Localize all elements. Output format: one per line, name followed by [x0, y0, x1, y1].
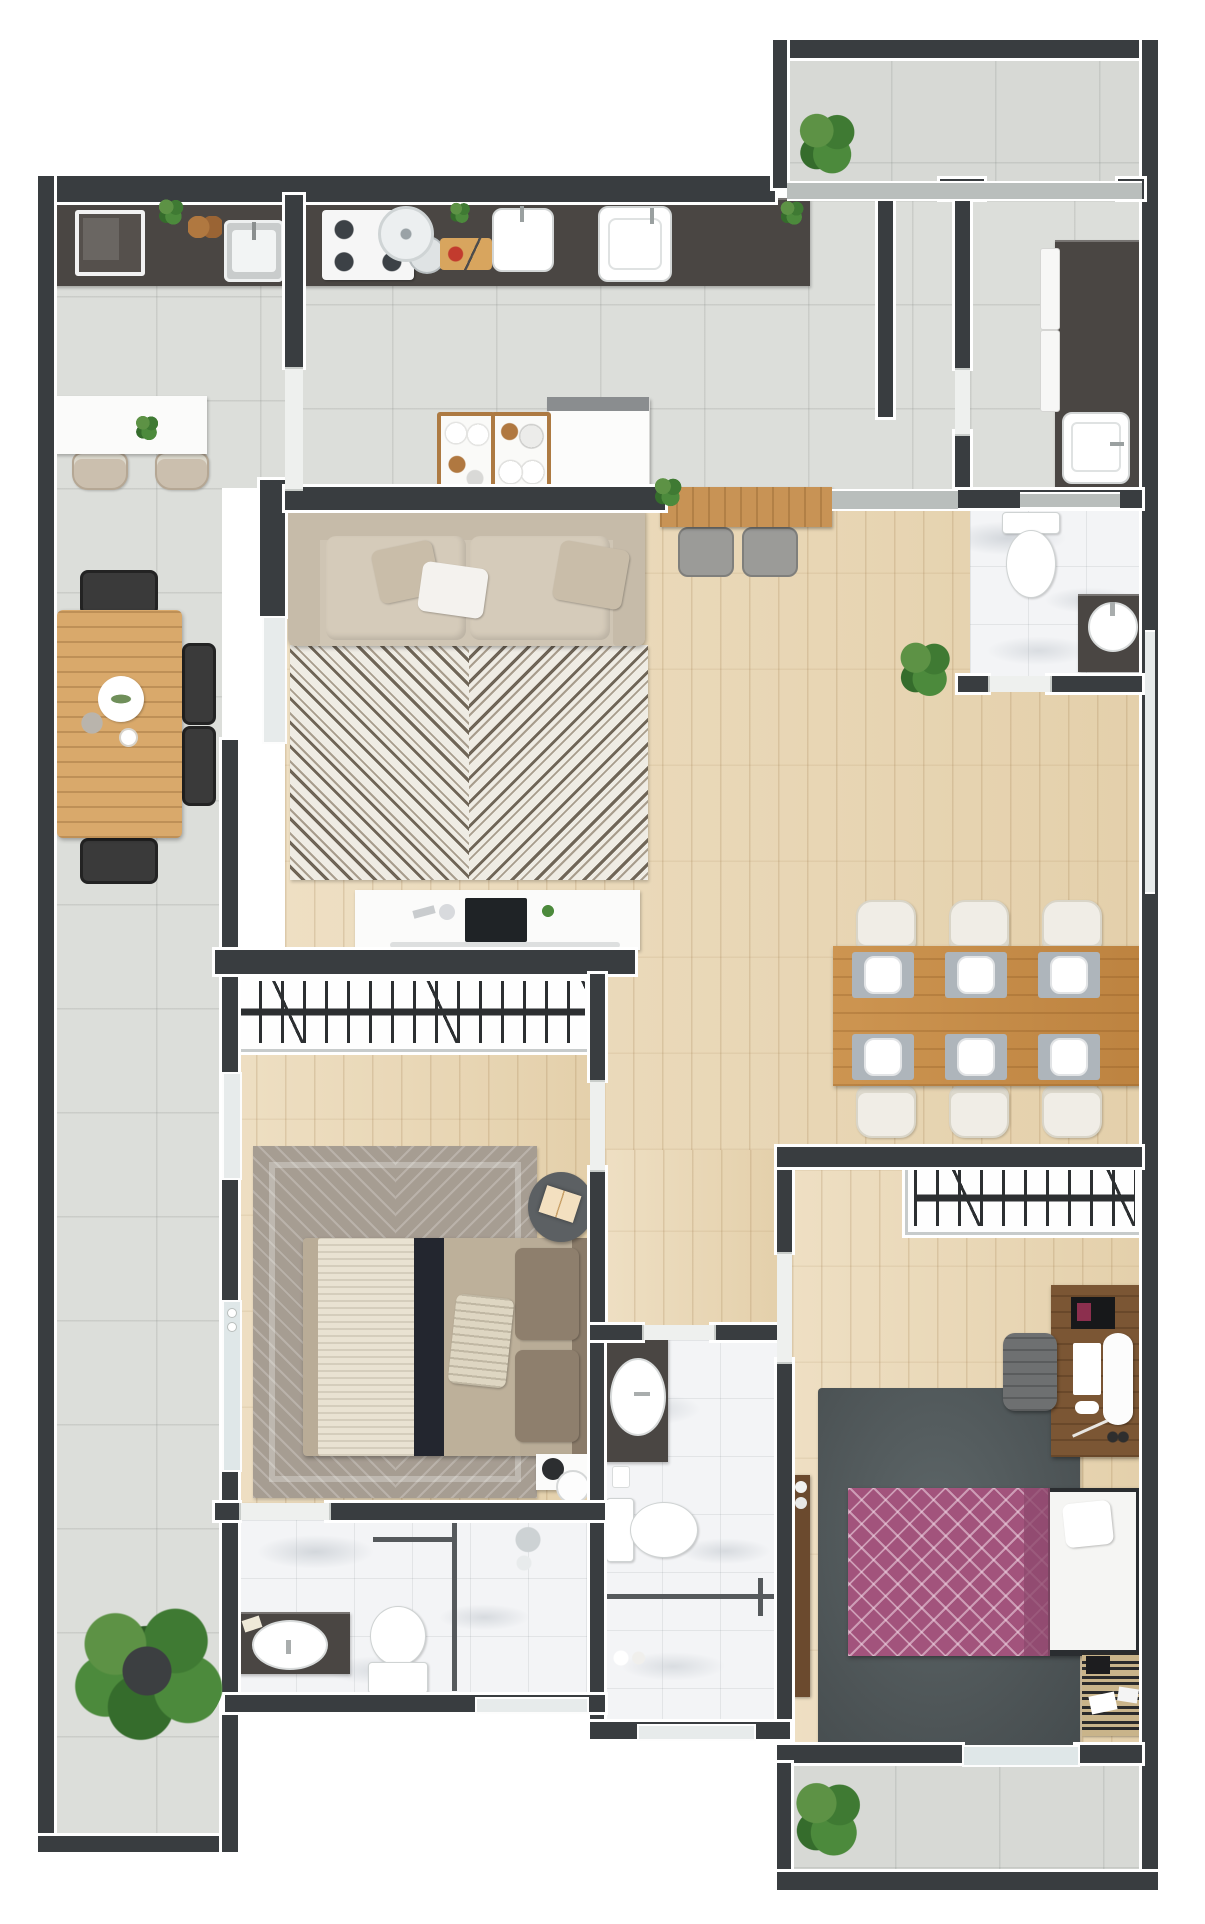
wall-bathroom3-bottom-b	[1048, 676, 1142, 692]
bathroom3-toilet-bowl	[1006, 530, 1056, 598]
plant-terrace-table	[134, 412, 160, 442]
bathroom2-cup	[612, 1466, 630, 1488]
terrace-built-in-appliance	[75, 210, 145, 276]
tv	[465, 898, 527, 942]
plate	[1050, 956, 1088, 994]
mat-card-1	[1088, 1691, 1117, 1714]
desk	[1051, 1285, 1139, 1457]
bathroom1-shower-partition-h	[373, 1537, 457, 1542]
living-rug-left-half	[290, 645, 469, 880]
terrace-bar-chair-1	[72, 452, 128, 490]
window-service-bottom	[1020, 492, 1120, 509]
window-balcony-service	[787, 181, 1142, 201]
wall-left-outer	[38, 176, 54, 1852]
bathroom1-faucet	[286, 1640, 291, 1654]
plant-kitchen-counter-left	[156, 196, 186, 226]
sofa-backrest	[288, 506, 645, 540]
wall-service-west-a	[955, 195, 970, 368]
bed1-pillow-top	[515, 1248, 579, 1340]
wall-balcony-bottom	[777, 1872, 1158, 1890]
window-bedroom1-terrace	[222, 1072, 242, 1180]
bedroom1-bed	[303, 1238, 591, 1456]
bathroom3-basin	[1088, 602, 1138, 652]
placemat-5	[945, 1034, 1007, 1080]
door-knob-2	[227, 1322, 237, 1332]
outdoor-chair-right-2	[182, 726, 216, 806]
plant-bar-counter	[652, 474, 684, 508]
kitchen-sink-2	[598, 206, 672, 282]
wall-bedroom2-west-b	[777, 1360, 792, 1763]
window-living-west	[262, 616, 287, 744]
living-rug-right-half	[469, 645, 648, 880]
dining-chair-bottom-2	[949, 1086, 1009, 1138]
dining-chair-top-3	[1042, 900, 1102, 952]
wall-hall-bathroom2-b	[712, 1325, 777, 1340]
terrace-sink	[224, 220, 284, 282]
watch-decor	[439, 904, 455, 920]
floor-plan-stage	[0, 0, 1205, 1924]
sink1-faucet	[520, 206, 524, 222]
dining-chair-bottom-3	[1042, 1086, 1102, 1138]
placemat-6	[1038, 1034, 1100, 1080]
terrace-bar-table	[55, 396, 207, 454]
bedroom1-wardrobe	[228, 972, 594, 1052]
monitor	[1103, 1333, 1133, 1425]
wall-right-outer	[1142, 40, 1158, 1888]
sill-pass-through	[832, 489, 958, 511]
washer-front-1	[1040, 248, 1060, 330]
service-sink-faucet	[1110, 442, 1124, 446]
bathroom1-toilet-bowl	[370, 1606, 426, 1666]
kitchen-sink-1	[492, 208, 554, 272]
wall-bedroom1-east-a	[590, 974, 605, 1080]
mat-card-2	[1117, 1687, 1139, 1704]
console-plant	[539, 902, 557, 920]
service-sink-bowl	[1071, 422, 1121, 472]
wall-bedroom2-bottom-b	[1076, 1745, 1142, 1763]
wall-balcony-top-left	[773, 40, 787, 188]
placemat-3	[1038, 952, 1100, 998]
plant-terrace-large	[68, 1596, 226, 1746]
glass-door-bedroom1-terrace	[222, 1300, 242, 1472]
office-chair	[1003, 1333, 1057, 1411]
wall-bedroom2-bottom-a	[777, 1745, 962, 1763]
bed1-pillow-bottom	[515, 1350, 579, 1442]
bathroom1-shower-head	[508, 1524, 548, 1576]
plant-kitchen-herb	[448, 200, 472, 224]
shelf-knob-2	[795, 1497, 807, 1509]
laptop	[1071, 1297, 1115, 1329]
wall-living-west	[260, 480, 285, 616]
wall-kitchen-divider	[878, 195, 893, 417]
outdoor-chair-bottom	[80, 838, 158, 884]
mat-book	[1086, 1656, 1110, 1674]
bed1-navy-runner	[414, 1238, 446, 1456]
decor-cup	[119, 728, 138, 747]
wall-bedroom1-bottom-a	[215, 1503, 239, 1520]
serving-tray-2	[491, 412, 551, 498]
wall-hall-bathroom2-a	[590, 1325, 642, 1340]
sliding-door-balcony-bottom	[962, 1745, 1080, 1767]
wall-living-bedroom1	[215, 950, 635, 974]
bathroom1-shower-partition-v	[452, 1523, 457, 1691]
sofa-armrest-left	[288, 506, 320, 646]
bathroom2-shower-partition-h	[606, 1594, 774, 1599]
bed1-knit-throw	[318, 1238, 416, 1456]
floor-hallway	[605, 1150, 777, 1328]
plate	[864, 1038, 902, 1076]
outdoor-dining-table	[57, 610, 182, 838]
wall-kitchen-west-stub	[285, 195, 303, 367]
wall-bottom-left	[38, 1836, 230, 1852]
refrigerator-top	[547, 397, 649, 411]
bedroom2-wall-shelf	[792, 1475, 810, 1697]
plant-balcony-top	[795, 104, 859, 178]
window-dining-east	[1145, 630, 1155, 894]
bathroom1-basin	[252, 1620, 328, 1670]
plant-kitchen-counter-right	[778, 198, 806, 226]
plate	[957, 956, 995, 994]
soundbar	[390, 942, 620, 948]
bathroom2-faucet	[634, 1392, 650, 1396]
wall-kitchen-living	[285, 487, 665, 510]
media-console	[355, 890, 640, 950]
wall-bedroom1-east-b	[590, 1168, 605, 1325]
round-side-table	[528, 1172, 594, 1242]
door-terrace-kitchen	[285, 367, 303, 491]
remote	[412, 905, 435, 918]
plate	[1050, 1038, 1088, 1076]
door-bathroom2	[642, 1325, 716, 1340]
decor-pinecone	[77, 706, 107, 740]
wall-bedroom1-bottom-b	[327, 1503, 605, 1520]
mouse	[1075, 1401, 1099, 1414]
wall-bathroom3-bottom-a	[958, 676, 988, 692]
sink2-bowl	[608, 218, 662, 270]
service-sink	[1062, 412, 1130, 484]
terrace-sink-faucet	[252, 222, 256, 240]
door-bedroom2	[777, 1252, 792, 1364]
sink2-faucet	[650, 208, 654, 224]
sofa-pillow-white	[417, 561, 489, 620]
door-kitchen-service	[955, 368, 970, 436]
bathroom2-toilet-bowl	[630, 1502, 698, 1558]
sofa-pillow-beige-right	[551, 539, 630, 610]
dining-chair-top-1	[856, 900, 916, 952]
pan-lid	[378, 206, 434, 262]
appliance-screen	[83, 218, 119, 260]
door-bathroom3	[988, 676, 1052, 692]
plant-hallway	[896, 634, 954, 700]
outdoor-chair-right-1	[182, 643, 216, 725]
bread-plate	[188, 216, 222, 238]
plant-balcony-bottom	[792, 1770, 864, 1862]
wall-balcony-bottom-left	[777, 1763, 791, 1874]
bed2-duvet-fold	[1024, 1488, 1050, 1656]
window-bathroom2	[637, 1724, 756, 1741]
bar-stool-2	[742, 527, 798, 577]
plate	[864, 956, 902, 994]
bathroom2-shower-partition-v	[758, 1578, 763, 1616]
placemat-2	[945, 952, 1007, 998]
bathroom2-basin	[610, 1358, 666, 1436]
door-bathroom1	[239, 1503, 331, 1520]
dining-chair-top-2	[949, 900, 1009, 952]
wall-balcony-top-top	[773, 40, 1142, 58]
shelf-knob-1	[795, 1481, 807, 1493]
bathroom1-toilet-tank	[368, 1662, 428, 1694]
window-bathroom1	[475, 1697, 589, 1714]
hanger-rail	[237, 981, 585, 1043]
door-bedroom1	[590, 1080, 605, 1172]
pen	[1072, 1419, 1108, 1437]
open-book	[539, 1185, 582, 1223]
keyboard	[1073, 1343, 1101, 1395]
robot-vacuum	[556, 1470, 590, 1504]
plate	[957, 1038, 995, 1076]
bed1-striped-pillow	[447, 1293, 514, 1389]
zigzag-mat	[1082, 1652, 1146, 1736]
bar-stool-1	[678, 527, 734, 577]
terrace-bar-chair-2	[155, 452, 209, 490]
bedroom2-bed	[848, 1488, 1142, 1656]
bar-counter	[660, 487, 832, 527]
dining-chair-bottom-1	[856, 1086, 916, 1138]
wall-bedroom2-top	[777, 1147, 1142, 1167]
bed2-purple-duvet	[848, 1488, 1048, 1656]
placemat-4	[852, 1034, 914, 1080]
bed2-pillow	[1062, 1500, 1114, 1549]
cutting-board	[440, 238, 492, 270]
wall-top	[38, 176, 775, 202]
bathroom2-amenities	[610, 1648, 654, 1668]
living-room-rug	[290, 645, 648, 880]
glasses	[1107, 1431, 1129, 1443]
placemat-1	[852, 952, 914, 998]
door-knob-1	[227, 1308, 237, 1318]
refrigerator	[548, 398, 650, 492]
laptop-sticker	[1077, 1303, 1091, 1321]
wall-bathroom2-west	[590, 1325, 604, 1722]
serving-tray-1	[437, 412, 495, 498]
bedroom2-wardrobe	[905, 1161, 1144, 1235]
hanger-rail	[914, 1170, 1135, 1226]
washer-front-2	[1040, 330, 1060, 412]
bathroom3-faucet	[1110, 602, 1115, 616]
